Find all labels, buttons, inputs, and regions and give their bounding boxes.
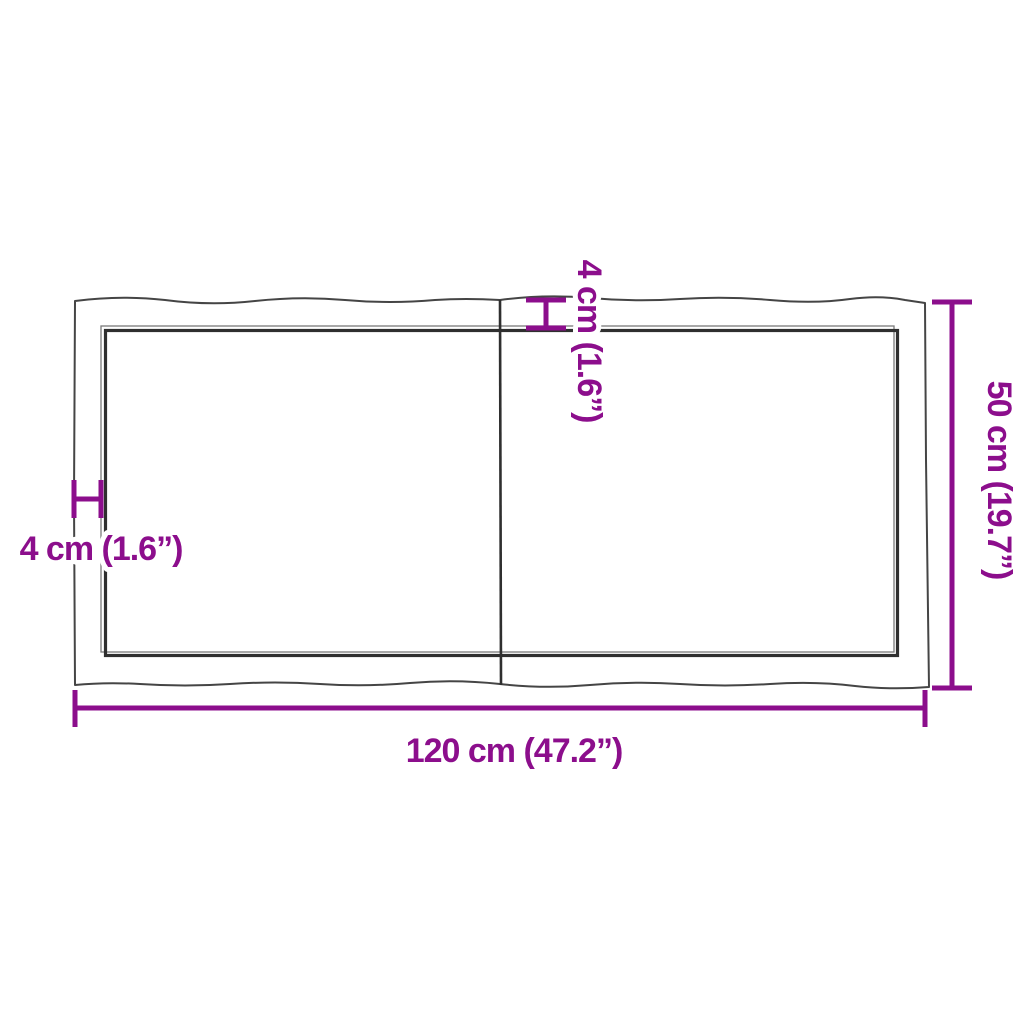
width-dimension-label: 120 cm (47.2”) — [406, 732, 623, 770]
height-dimension-label: 50 cm (19.7”) — [980, 381, 1018, 580]
width-dimension: 120 cm (47.2”) — [75, 690, 925, 770]
thickness-top-label: 4 cm (1.6”) — [570, 260, 608, 423]
thickness-left-label: 4 cm (1.6”) — [20, 530, 183, 568]
dimension-diagram: 120 cm (47.2”) 50 cm (19.7”) 4 cm (1.6”)… — [0, 0, 1024, 1024]
height-dimension: 50 cm (19.7”) — [932, 302, 1018, 688]
board-inner-edge-light — [101, 326, 894, 652]
dimension-diagram-page: 120 cm (47.2”) 50 cm (19.7”) 4 cm (1.6”)… — [0, 0, 1024, 1024]
thickness-marker-top: 4 cm (1.6”) — [526, 260, 608, 423]
board — [74, 296, 929, 688]
board-seam-line — [500, 300, 501, 685]
